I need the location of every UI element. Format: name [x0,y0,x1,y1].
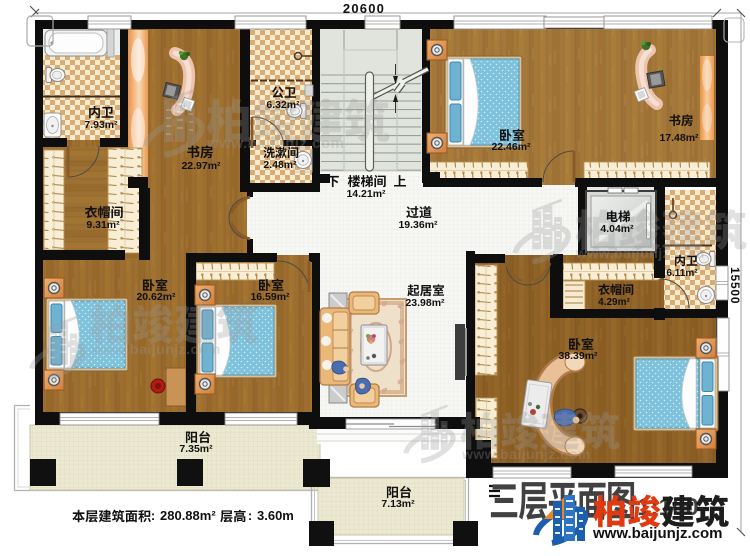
svg-text:14.21m²: 14.21m² [346,188,386,200]
svg-text:15500: 15500 [728,267,742,304]
svg-text:www.baijunjz.com: www.baijunjz.com [461,446,591,462]
svg-text:22.46m²: 22.46m² [491,141,531,153]
svg-text:7.93m²: 7.93m² [84,119,118,131]
svg-text:www.baijunjz.com: www.baijunjz.com [592,525,722,542]
svg-text:www.baijunjz.com: www.baijunjz.com [575,245,705,261]
svg-text:280.88m²: 280.88m² [160,508,216,523]
svg-text:4.04m²: 4.04m² [600,223,634,235]
svg-text:23.98m²: 23.98m² [405,297,445,309]
svg-text:3.60m: 3.60m [257,508,294,523]
svg-text:7.13m²: 7.13m² [381,498,415,510]
svg-text:20.62m²: 20.62m² [136,291,176,303]
svg-text:38.39m²: 38.39m² [558,350,598,362]
svg-text:20600: 20600 [343,1,385,16]
svg-text:19.36m²: 19.36m² [398,219,438,231]
svg-text:4.29m²: 4.29m² [598,297,630,308]
svg-text:www.baijunjz.com: www.baijunjz.com [91,341,221,357]
svg-text:6.11m²: 6.11m² [666,268,698,279]
svg-text:6.32m²: 6.32m² [266,99,300,111]
svg-text:2.48m²: 2.48m² [263,159,297,171]
svg-text::: : [151,508,155,523]
svg-text:17.48m²: 17.48m² [659,132,699,144]
svg-text:www.baijunjz.com: www.baijunjz.com [206,135,344,152]
svg-text:16.59m²: 16.59m² [250,291,290,303]
svg-text::: : [248,508,252,523]
svg-text:7.35m²: 7.35m² [179,443,213,455]
svg-text:22.97m²: 22.97m² [181,160,221,172]
svg-text:9.31m²: 9.31m² [86,219,120,231]
